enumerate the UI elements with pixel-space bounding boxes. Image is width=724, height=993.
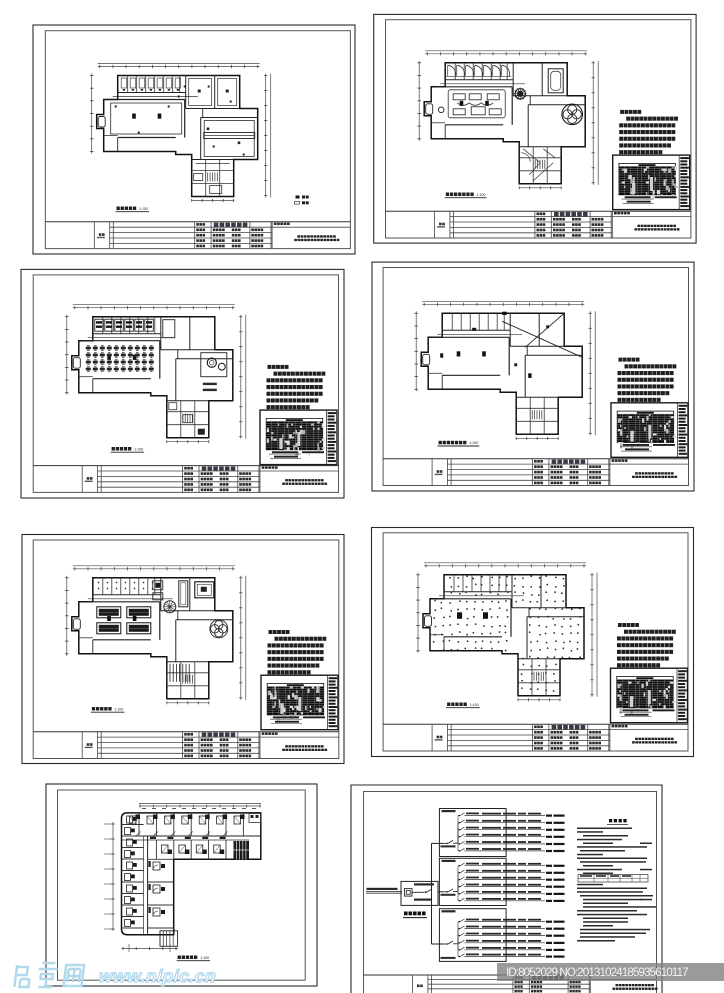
svg-text:1:100: 1:100 (134, 447, 143, 451)
svg-text:1:100: 1:100 (469, 441, 478, 445)
svg-text:1:100: 1:100 (114, 707, 123, 711)
svg-text:1:100: 1:100 (470, 703, 479, 707)
svg-text:1:100: 1:100 (200, 956, 209, 960)
svg-text:1:100: 1:100 (139, 207, 148, 211)
svg-text:1:100: 1:100 (477, 193, 486, 197)
